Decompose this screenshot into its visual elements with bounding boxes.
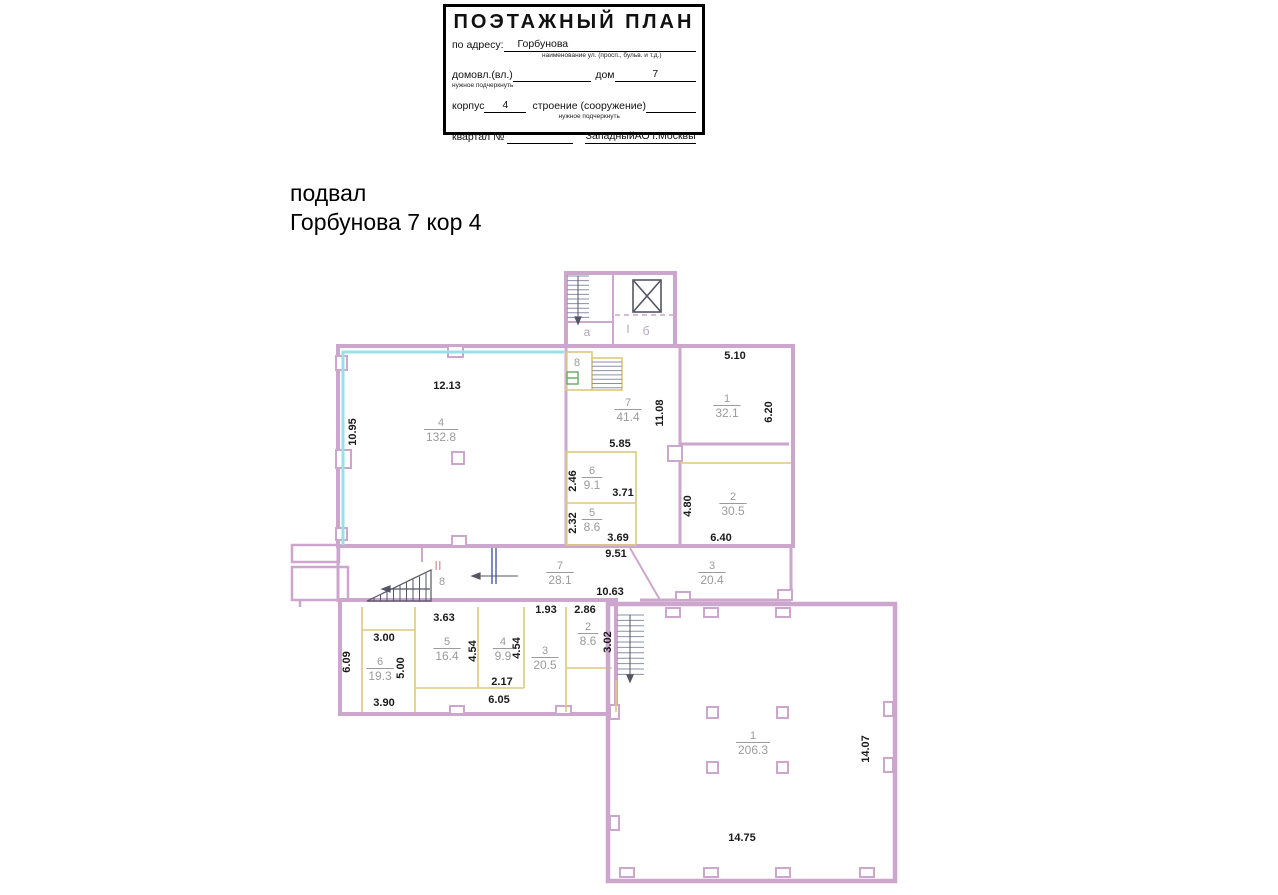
sanitary-fixture-icon bbox=[567, 372, 578, 384]
dimension-label: 14.75 bbox=[728, 832, 756, 844]
room-area: 20.5 bbox=[533, 658, 557, 672]
room-number: 6 bbox=[589, 465, 595, 477]
room-area: 9.1 bbox=[584, 478, 601, 492]
dimension-label: 3.90 bbox=[373, 697, 394, 709]
floor-plan: 12.1310.955.106.2011.085.852.463.712.323… bbox=[0, 0, 1278, 895]
dimension-label: 2.32 bbox=[567, 512, 579, 533]
room-number: 2 bbox=[730, 491, 736, 503]
room-area: 20.4 bbox=[700, 573, 724, 587]
plan-shape bbox=[472, 573, 480, 579]
room-area: 32.1 bbox=[715, 406, 739, 420]
section-II-area-label: 8 bbox=[439, 576, 445, 588]
dimension-label: 11.08 bbox=[654, 400, 666, 427]
plan-shape bbox=[382, 586, 390, 592]
room-8-label: 8 bbox=[574, 357, 580, 369]
dimension-label: 6.20 bbox=[763, 401, 775, 422]
room-number: 3 bbox=[542, 645, 548, 657]
room-number: 4 bbox=[500, 636, 506, 648]
dimension-label: 9.51 bbox=[605, 548, 626, 560]
dimension-label: 5.10 bbox=[724, 350, 745, 362]
dimension-label: 5.00 bbox=[395, 657, 407, 678]
dimension-label: 6.05 bbox=[488, 694, 509, 706]
dimension-label: 2.86 bbox=[574, 604, 595, 616]
room-area: 9.9 bbox=[495, 649, 512, 663]
generated-shapes bbox=[367, 276, 644, 682]
room-area: 19.3 bbox=[368, 669, 392, 683]
entrance-pits bbox=[292, 545, 348, 607]
dimension-label: 2.17 bbox=[491, 676, 512, 688]
room-area: 8.6 bbox=[584, 520, 601, 534]
dimension-label: 10.63 bbox=[596, 586, 624, 598]
room-area: 30.5 bbox=[721, 504, 745, 518]
room-area: 41.4 bbox=[616, 410, 640, 424]
dimension-label: 5.85 bbox=[609, 438, 630, 450]
room-number: 1 bbox=[724, 393, 730, 405]
dimension-label: 6.09 bbox=[341, 651, 353, 672]
room-number: 7 bbox=[557, 560, 563, 572]
room-area: 206.3 bbox=[738, 743, 768, 757]
room-area: 8.6 bbox=[580, 634, 597, 648]
room-number: 2 bbox=[585, 621, 591, 633]
room-number: 5 bbox=[444, 636, 450, 648]
room-area: 28.1 bbox=[548, 573, 572, 587]
room-number: 5 bbox=[589, 507, 595, 519]
plan-shape bbox=[627, 675, 633, 682]
plan-shape bbox=[367, 570, 431, 601]
dimension-label: 4.54 bbox=[467, 639, 479, 661]
room-number: 3 bbox=[709, 560, 715, 572]
dimension-label: 4.54 bbox=[511, 636, 523, 658]
section-b-label: б bbox=[643, 324, 650, 338]
room-number: 7 bbox=[625, 397, 631, 409]
dimension-label: 3.71 bbox=[612, 487, 633, 499]
dimension-label: 2.46 bbox=[567, 470, 579, 491]
dimension-label: 10.95 bbox=[347, 418, 359, 446]
room-number: 6 bbox=[377, 656, 383, 668]
page: { "title_block": { "title": "ПОЭТАЖНЫЙ П… bbox=[0, 0, 1278, 895]
dimension-label: 3.63 bbox=[433, 612, 454, 624]
stair-section-a-label: а bbox=[584, 325, 591, 339]
dimension-label: 14.07 bbox=[860, 735, 872, 763]
room-area: 132.8 bbox=[426, 430, 456, 444]
dimension-label: 4.80 bbox=[682, 495, 694, 516]
dimension-label: 1.93 bbox=[535, 604, 556, 616]
section-II-label: II bbox=[434, 558, 441, 573]
dimension-label: 3.02 bbox=[602, 631, 614, 652]
dimension-label: 6.40 bbox=[710, 532, 731, 544]
room-area: 16.4 bbox=[435, 649, 459, 663]
dimension-label: 12.13 bbox=[433, 380, 461, 392]
section-I-label: I bbox=[626, 322, 629, 336]
dimension-label: 3.00 bbox=[373, 632, 394, 644]
room-number: 1 bbox=[750, 730, 756, 742]
elevator-shaft-icon bbox=[633, 280, 661, 312]
room-number: 4 bbox=[438, 417, 444, 429]
dimension-label: 3.69 bbox=[607, 532, 628, 544]
